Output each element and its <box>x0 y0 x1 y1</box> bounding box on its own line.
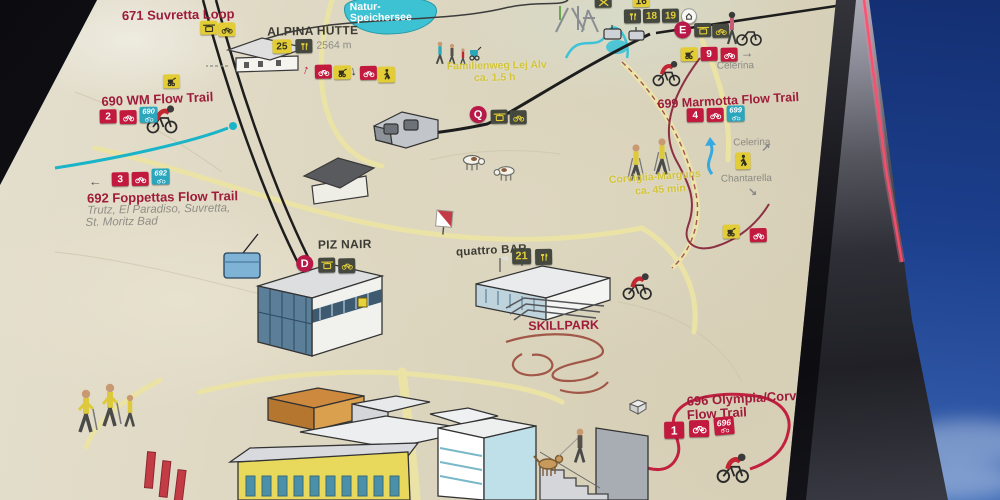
piz-nair-label: PIZ NAIR <box>318 237 372 252</box>
trail-label-690: 690 WM Flow Trail <box>101 89 214 109</box>
bike-icon <box>341 261 353 270</box>
stroller-badge <box>723 224 740 238</box>
bike-badge <box>360 66 377 80</box>
bike-icon <box>512 113 524 122</box>
stroller-icon <box>725 227 737 236</box>
hiker-badge <box>378 66 395 82</box>
bike-badge <box>689 420 709 437</box>
bike-icon <box>134 174 146 183</box>
route-690-badge: 690 <box>139 107 157 123</box>
bike-icon <box>143 115 154 121</box>
bike-badge <box>120 110 137 124</box>
cablecar-icon <box>321 261 333 270</box>
hut-icon <box>684 11 694 21</box>
skillpark-label: SKILLPARK <box>528 318 599 333</box>
photo-scene: 671 Suvretta Loop ALPINA HÜTTE 25 2564 m… <box>0 0 1000 500</box>
lift-2-badge: 2 <box>100 109 117 123</box>
bike-icon <box>719 426 730 433</box>
arrow-right-icon: → <box>740 45 753 60</box>
arrow-se-icon: ↘ <box>748 185 757 198</box>
lift-1-badge: 1 <box>664 421 684 438</box>
bike-badge <box>218 22 235 36</box>
bike-badge <box>510 110 527 124</box>
cablecar-badge <box>318 257 335 272</box>
restaurant-badge <box>535 249 552 265</box>
bike-icon <box>317 67 329 76</box>
stroller-icon <box>336 68 348 77</box>
route-692-badge: 692 <box>152 168 170 184</box>
lift-9-badge: 9 <box>701 47 718 61</box>
hiker-icon <box>737 154 749 167</box>
bike-icon <box>155 177 166 183</box>
cablecar-badge <box>200 21 217 35</box>
hiker-icon <box>380 68 392 80</box>
lift-e-badge: E <box>674 21 691 38</box>
restaurant-badge <box>624 9 641 23</box>
arrow-ne-icon: ↗ <box>761 141 770 154</box>
bike-icon <box>730 114 741 120</box>
tools-badge <box>595 0 612 8</box>
lift-d-badge: D <box>296 255 313 272</box>
bike-badge <box>132 172 149 186</box>
route-696-badge: 696 <box>713 416 734 436</box>
bike-icon <box>709 110 721 119</box>
bike-icon <box>362 68 374 77</box>
familienweg-duration: ca. 1.5 h <box>474 71 516 84</box>
stroller-icon <box>165 77 177 86</box>
arrow-down-icon: ↓ <box>349 63 358 79</box>
hiker-badge <box>735 152 750 169</box>
restaurant-icon <box>626 12 638 21</box>
chantarella-label: Chantarella <box>721 173 772 185</box>
route-699-badge: 699 <box>727 105 745 121</box>
bike-icon <box>752 230 764 239</box>
trail-692-destinations-2: St. Moritz Bad <box>85 216 157 229</box>
cablecar-icon <box>493 112 505 121</box>
lift-q-badge: Q <box>469 106 486 123</box>
bike-badge <box>338 258 355 273</box>
trail-692-destinations-1: Trutz, El Paradiso, Suvretta, <box>87 202 230 216</box>
trail-label-671: 671 Suvretta Loop <box>122 6 235 23</box>
bike-badge <box>750 228 767 242</box>
celerina-upper-label: Celerina <box>717 60 754 72</box>
bike-icon <box>221 25 233 34</box>
poi-18-badge: 18 <box>643 9 660 23</box>
bike-badge <box>315 65 332 79</box>
corviglia-marguns-duration: ca. 45 min <box>635 182 686 198</box>
cablecar-icon <box>203 23 215 32</box>
bike-badge <box>707 108 724 122</box>
bike-icon <box>715 26 727 35</box>
stroller-badge <box>163 74 180 88</box>
arrow-up-icon: ↑ <box>301 61 312 77</box>
poi-25-badge: 25 <box>272 39 291 53</box>
restaurant-badge <box>295 39 312 53</box>
poi-16-badge: 16 <box>633 0 650 7</box>
lake-label-line2: Speichersee <box>350 12 412 24</box>
stroller-badge <box>681 47 698 61</box>
cablecar-badge <box>694 23 711 37</box>
cablecar-badge <box>491 109 508 123</box>
restaurant-icon <box>298 41 310 50</box>
arrow-left-icon: ← <box>89 174 102 189</box>
familienweg-label: Familienweg Lej Alv <box>447 59 547 73</box>
poi-21-badge: 21 <box>512 248 531 264</box>
crossed-tools-icon <box>597 0 609 7</box>
cablecar-icon <box>697 25 709 34</box>
lift-4-badge: 4 <box>687 108 704 122</box>
poi-19-badge: 19 <box>662 8 679 22</box>
bike-icon <box>122 112 134 121</box>
alpina-elevation-label: 2564 m <box>316 39 351 52</box>
restaurant-icon <box>538 252 550 261</box>
alpina-huette-label: ALPINA HÜTTE <box>267 23 358 39</box>
bike-icon <box>692 423 707 434</box>
bike-badge <box>712 24 729 38</box>
stroller-icon <box>683 50 695 59</box>
lift-3-badge: 3 <box>112 172 129 186</box>
bike-icon <box>723 50 735 59</box>
